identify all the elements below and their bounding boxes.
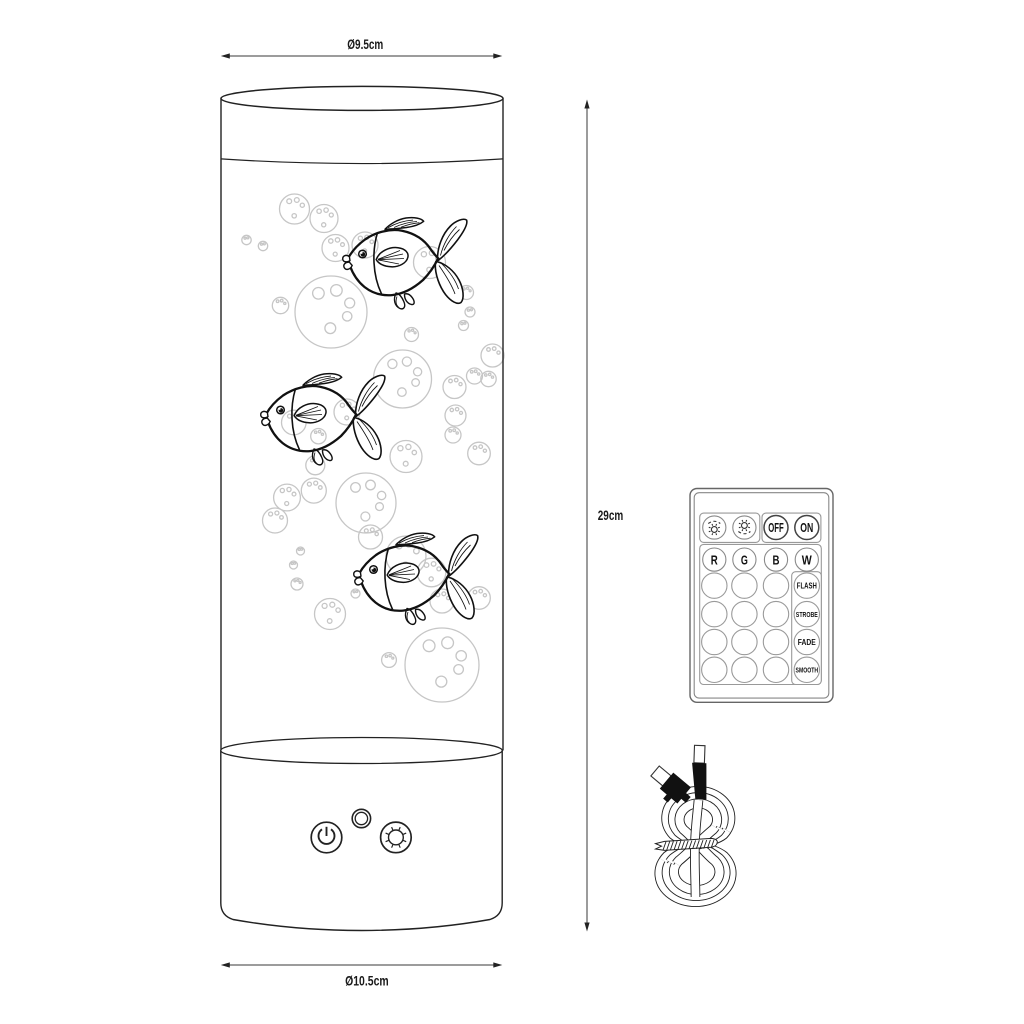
svg-text:R: R <box>711 552 718 567</box>
svg-text:OFF: OFF <box>768 520 784 535</box>
svg-text:B: B <box>773 552 780 567</box>
svg-text:29cm: 29cm <box>598 507 624 523</box>
svg-text:ON: ON <box>800 520 813 535</box>
svg-text:STROBE: STROBE <box>796 610 818 619</box>
svg-text:Ø10.5cm: Ø10.5cm <box>345 972 389 988</box>
svg-text:G: G <box>741 552 748 567</box>
svg-text:SMOOTH: SMOOTH <box>796 666 819 675</box>
svg-text:W: W <box>802 552 813 567</box>
svg-text:Ø9.5cm: Ø9.5cm <box>347 36 383 52</box>
svg-text:FLASH: FLASH <box>797 582 817 591</box>
svg-text:FADE: FADE <box>798 638 817 647</box>
